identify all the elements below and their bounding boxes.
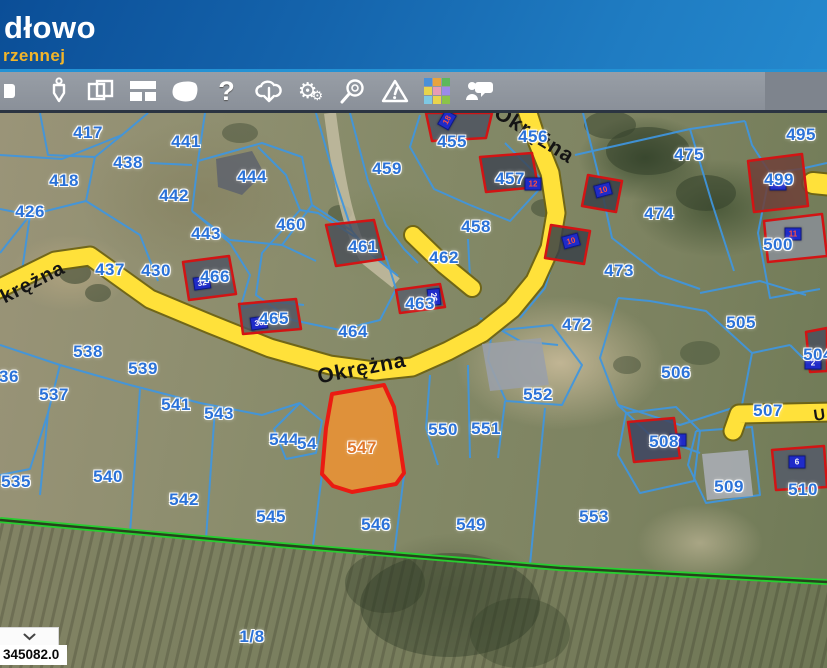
legend-grid-icon[interactable]	[420, 73, 453, 109]
overlapping-windows-icon[interactable]	[84, 73, 117, 109]
app-tagline: rzennej	[3, 46, 65, 66]
toolbar-right-panel	[765, 72, 827, 110]
help-icon[interactable]: ?	[210, 73, 243, 109]
plumb-bob-icon[interactable]	[42, 73, 75, 109]
scale-select-dropdown[interactable]	[0, 627, 59, 646]
gis-portal-page: { "header": { "app_name_fragment": "dłow…	[0, 0, 827, 668]
polygon-select-icon[interactable]	[168, 73, 201, 109]
settings-gears-icon[interactable]: ⚙⚙	[294, 73, 327, 109]
map-vector-overlay	[0, 113, 827, 668]
layout-panels-icon[interactable]	[126, 73, 159, 109]
warning-icon[interactable]	[378, 73, 411, 109]
app-header: dłowo rzennej	[0, 0, 827, 72]
selected-parcel-547[interactable]	[322, 385, 404, 492]
map-toolbar: ?⚙⚙	[0, 72, 827, 113]
feedback-people-icon[interactable]	[462, 73, 495, 109]
download-cloud-icon[interactable]	[252, 73, 285, 109]
chevron-down-icon	[23, 633, 36, 641]
zoom-search-icon[interactable]	[336, 73, 369, 109]
coordinate-readout: 345082.0	[0, 645, 67, 665]
app-title: dłowo	[4, 10, 96, 46]
tool-partial-icon[interactable]	[0, 73, 33, 109]
map-viewport[interactable]: krężnaOkrężnaOkrężnaU 181232302610104117…	[0, 113, 827, 668]
